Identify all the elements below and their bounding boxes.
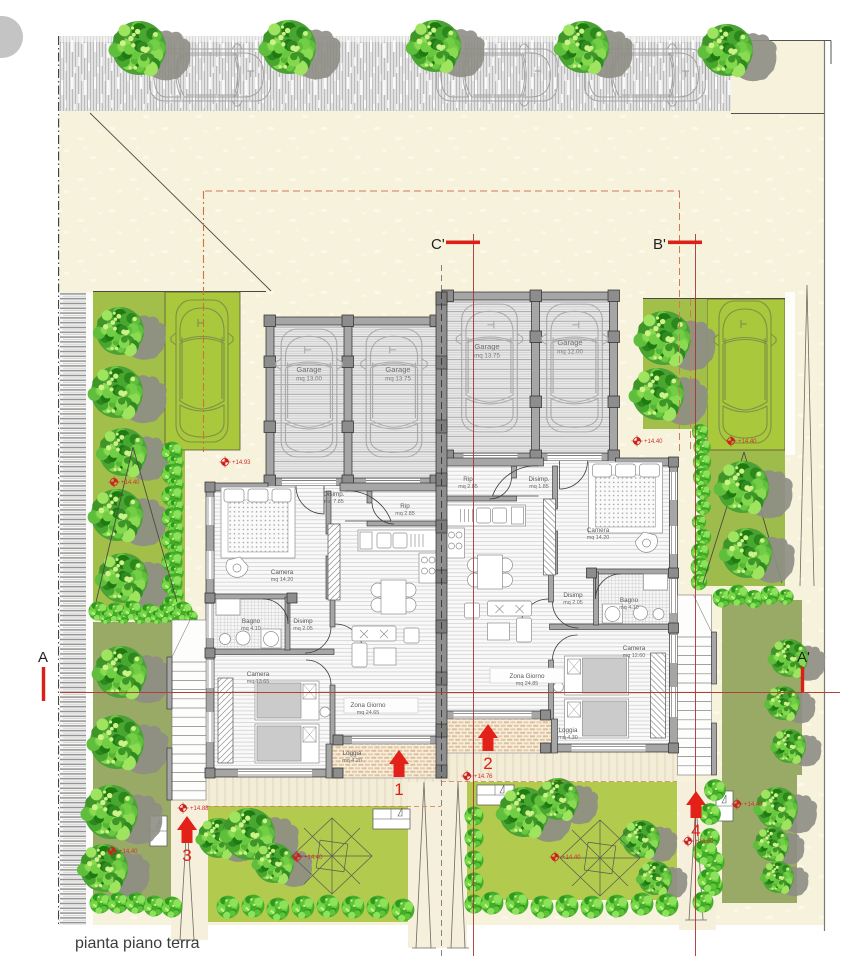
svg-text:Loggia: Loggia (559, 727, 578, 734)
svg-text:mq 2.05: mq 2.05 (563, 600, 582, 606)
svg-text:Zona Giorno: Zona Giorno (350, 702, 385, 709)
svg-text:Bagno: Bagno (620, 597, 639, 604)
svg-text:mq 4.30: mq 4.30 (558, 735, 577, 741)
svg-text:Garage: Garage (385, 365, 410, 374)
svg-text:mq 1.85: mq 1.85 (529, 484, 548, 490)
svg-text:+14.88: +14.88 (190, 806, 209, 812)
svg-text:+14.40: +14.40 (738, 439, 757, 445)
svg-text:Rip: Rip (400, 503, 410, 510)
svg-text:Camera: Camera (623, 645, 646, 652)
svg-text:Rip: Rip (463, 476, 473, 483)
svg-text:Disimp: Disimp (563, 592, 583, 599)
svg-text:Loggia: Loggia (343, 750, 362, 757)
svg-text:Disimp.: Disimp. (529, 476, 550, 483)
svg-text:mq 14.20: mq 14.20 (271, 577, 293, 583)
svg-text:Camera: Camera (247, 671, 270, 678)
svg-text:+14.76: +14.76 (474, 774, 493, 780)
svg-text:mq 13.75: mq 13.75 (385, 376, 411, 383)
svg-text:+14.40: +14.40 (562, 855, 581, 861)
svg-text:mq 2.85: mq 2.85 (395, 511, 414, 517)
svg-text:3: 3 (182, 846, 191, 865)
svg-text:Bagno: Bagno (242, 618, 261, 625)
svg-text:mq 4.10: mq 4.10 (241, 626, 260, 632)
svg-text:mq 4.10: mq 4.10 (619, 605, 638, 611)
svg-text:+14.40: +14.40 (304, 855, 323, 861)
svg-text:A: A (38, 649, 48, 666)
svg-text:Disimp: Disimp (293, 618, 313, 625)
svg-text:mq 12.00: mq 12.00 (557, 349, 583, 356)
svg-text:Garage: Garage (557, 338, 582, 347)
svg-text:1: 1 (394, 780, 403, 799)
svg-text:mq 2.05: mq 2.05 (293, 626, 312, 632)
svg-text:+14.40: +14.40 (644, 439, 663, 445)
svg-text:C': C' (431, 236, 445, 253)
svg-text:+14.93: +14.93 (232, 460, 251, 466)
svg-text:Garage: Garage (474, 342, 499, 351)
svg-text:mq 24.65: mq 24.65 (357, 710, 379, 716)
svg-text:Garage: Garage (296, 365, 321, 374)
svg-text:B': B' (653, 236, 666, 253)
svg-text:mq 13.75: mq 13.75 (474, 353, 500, 360)
svg-text:Camera: Camera (587, 527, 610, 534)
svg-text:mq 13.00: mq 13.00 (296, 376, 322, 383)
svg-text:Camera: Camera (271, 569, 294, 576)
svg-text:Disimp.: Disimp. (324, 491, 345, 498)
svg-text:Zona Giorno: Zona Giorno (509, 673, 544, 680)
svg-text:mq 13.65: mq 13.65 (247, 679, 269, 685)
svg-text:4: 4 (691, 821, 700, 840)
svg-text:mq 2.85: mq 2.85 (458, 484, 477, 490)
svg-text:mq 4.20: mq 4.20 (342, 758, 361, 764)
svg-text:mq 7.85: mq 7.85 (324, 499, 343, 505)
svg-text:2: 2 (483, 754, 492, 773)
svg-text:mq 14.20: mq 14.20 (587, 535, 609, 541)
svg-text:A': A' (797, 649, 810, 666)
svg-text:pianta piano terra: pianta piano terra (75, 935, 200, 952)
svg-text:+14.40: +14.40 (119, 849, 138, 855)
svg-text:mq 24.85: mq 24.85 (516, 681, 538, 687)
svg-text:+14.40: +14.40 (121, 480, 140, 486)
svg-text:mq 12.60: mq 12.60 (623, 653, 645, 659)
svg-text:+14.40: +14.40 (744, 802, 763, 808)
